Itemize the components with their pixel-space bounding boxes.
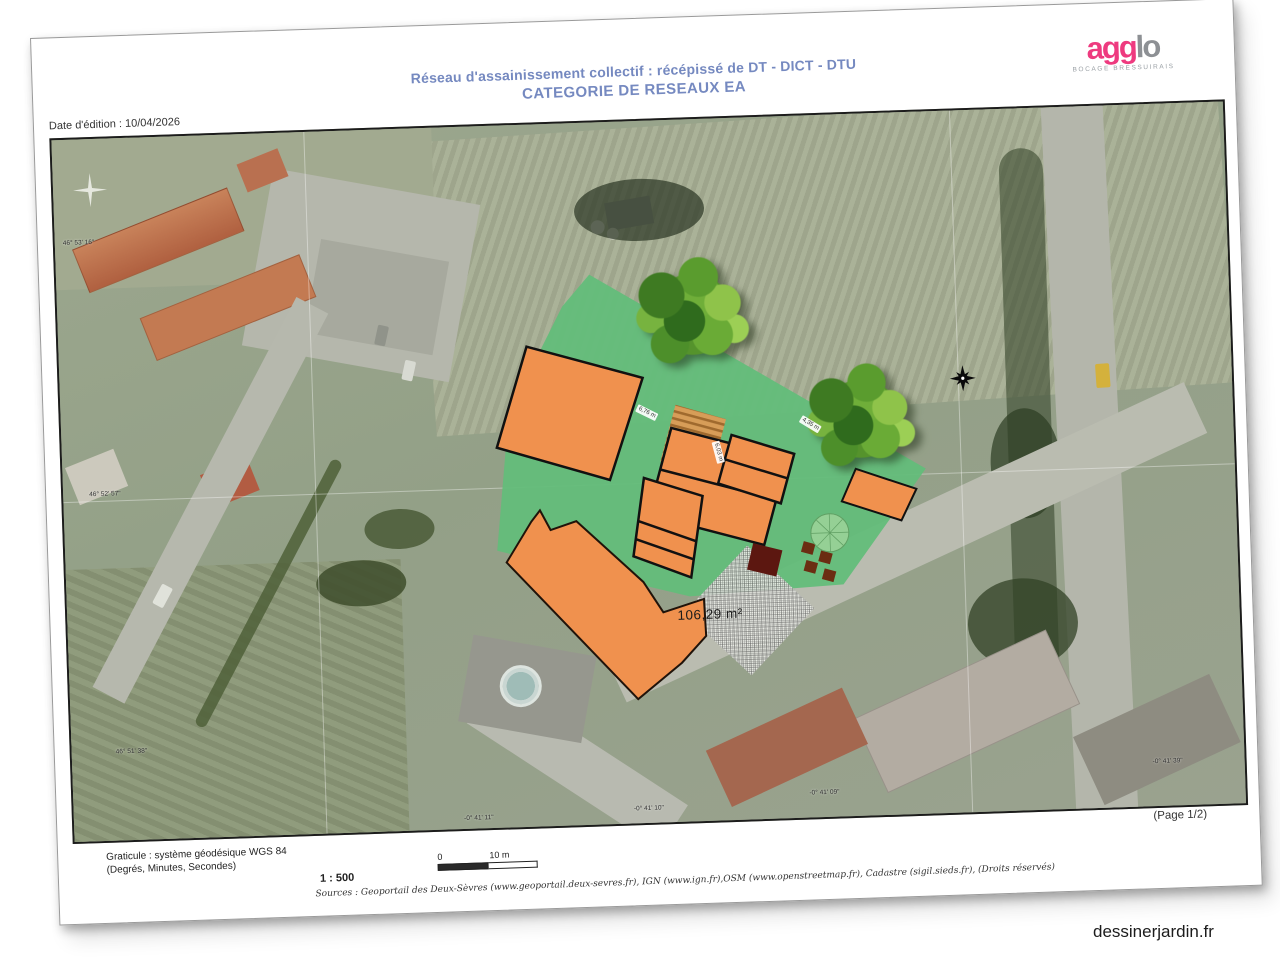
car-yellow <box>1095 363 1111 388</box>
scale-ratio: 1 : 500 <box>320 872 355 885</box>
agglo-logo: agglo BOCAGE BRESSUIRAIS <box>1037 30 1208 75</box>
scale-bar-light-segment <box>488 861 538 870</box>
building-outbuilding-right <box>717 433 796 506</box>
outbuilding-divider <box>724 457 787 480</box>
watermark-text: dessinerjardin.fr <box>1093 922 1214 942</box>
coordinate-label-2: 46° 52' 57" <box>89 490 121 498</box>
coordinate-label-7: -0° 41' 39" <box>1152 757 1182 765</box>
sources-note: Sources : Geoportail des Deux-Sèvres (ww… <box>315 860 1115 899</box>
page-number: (Page 1/2) <box>1153 808 1207 822</box>
house-divider <box>660 466 776 504</box>
logo-text-pink: agg <box>1086 29 1136 66</box>
scale-bar: 0 10 m <box>437 848 558 871</box>
scale-bar-dark-segment <box>438 862 489 871</box>
agglo-logo-wordmark: agglo <box>1037 30 1208 66</box>
coordinate-label-3: 46° 51' 38" <box>116 748 148 756</box>
scale-start-label: 0 <box>437 852 442 862</box>
aerial-photo: 106,29 m² 6,76 m 6,03 m 4,35 m 46° 53' 1… <box>51 101 1246 841</box>
graticule-note: Graticule : système géodésique WGS 84 (D… <box>106 845 287 877</box>
screenshot-canvas: Réseau d'assainissement collectif : récé… <box>0 0 1280 960</box>
coordinate-label-5: -0° 41' 10" <box>634 804 664 812</box>
edition-date: Date d'édition : 10/04/2026 <box>49 116 180 132</box>
map-frame: 106,29 m² 6,76 m 6,03 m 4,35 m 46° 53' 1… <box>49 99 1248 844</box>
scale-end-label: 10 m <box>489 850 509 861</box>
scale-bar-labels: 0 10 m <box>437 848 557 863</box>
coordinate-label-1: 46° 53' 16" <box>63 239 95 247</box>
hedge-blob-2 <box>364 508 435 550</box>
area-measurement-label: 106,29 m² <box>677 606 743 623</box>
coordinate-label-4: -0° 41' 11" <box>464 814 494 822</box>
logo-text-gray: lo <box>1135 29 1160 65</box>
building-annex <box>631 476 705 579</box>
roof-red-south <box>706 688 868 807</box>
dimension-label-2: 6,03 m <box>712 441 725 465</box>
annex-divider-1 <box>638 519 696 543</box>
annex-divider-2 <box>636 537 694 561</box>
document-page: Réseau d'assainissement collectif : récé… <box>30 0 1263 926</box>
coordinate-label-6: -0° 41' 09" <box>809 789 839 797</box>
